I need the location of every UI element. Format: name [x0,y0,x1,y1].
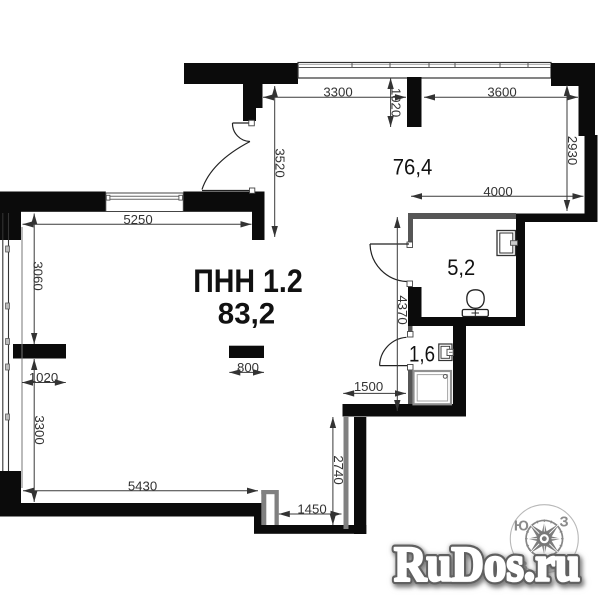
svg-text:3300: 3300 [323,85,352,100]
svg-text:3520: 3520 [273,148,288,177]
svg-text:2930: 2930 [565,136,580,165]
svg-text:2740: 2740 [331,455,346,484]
svg-text:5250: 5250 [123,212,152,227]
svg-text:1020: 1020 [389,88,404,117]
svg-text:ПНН 1.2: ПНН 1.2 [193,263,303,299]
svg-text:1500: 1500 [354,379,383,394]
svg-text:76,4: 76,4 [393,155,433,180]
svg-text:4000: 4000 [483,184,512,199]
svg-text:1450: 1450 [297,502,326,517]
svg-text:З: З [559,515,568,531]
svg-text:5430: 5430 [128,478,157,493]
svg-text:800: 800 [237,360,259,375]
svg-text:RuDos.ru: RuDos.ru [394,536,580,592]
svg-text:83,2: 83,2 [218,297,275,330]
svg-text:Ю: Ю [514,519,529,535]
svg-text:3060: 3060 [31,261,46,290]
svg-text:1020: 1020 [29,370,58,385]
svg-text:5,2: 5,2 [447,255,475,280]
svg-text:3600: 3600 [487,85,516,100]
svg-text:4370: 4370 [395,295,410,324]
svg-text:1,6: 1,6 [409,341,435,366]
svg-text:3300: 3300 [32,415,47,444]
